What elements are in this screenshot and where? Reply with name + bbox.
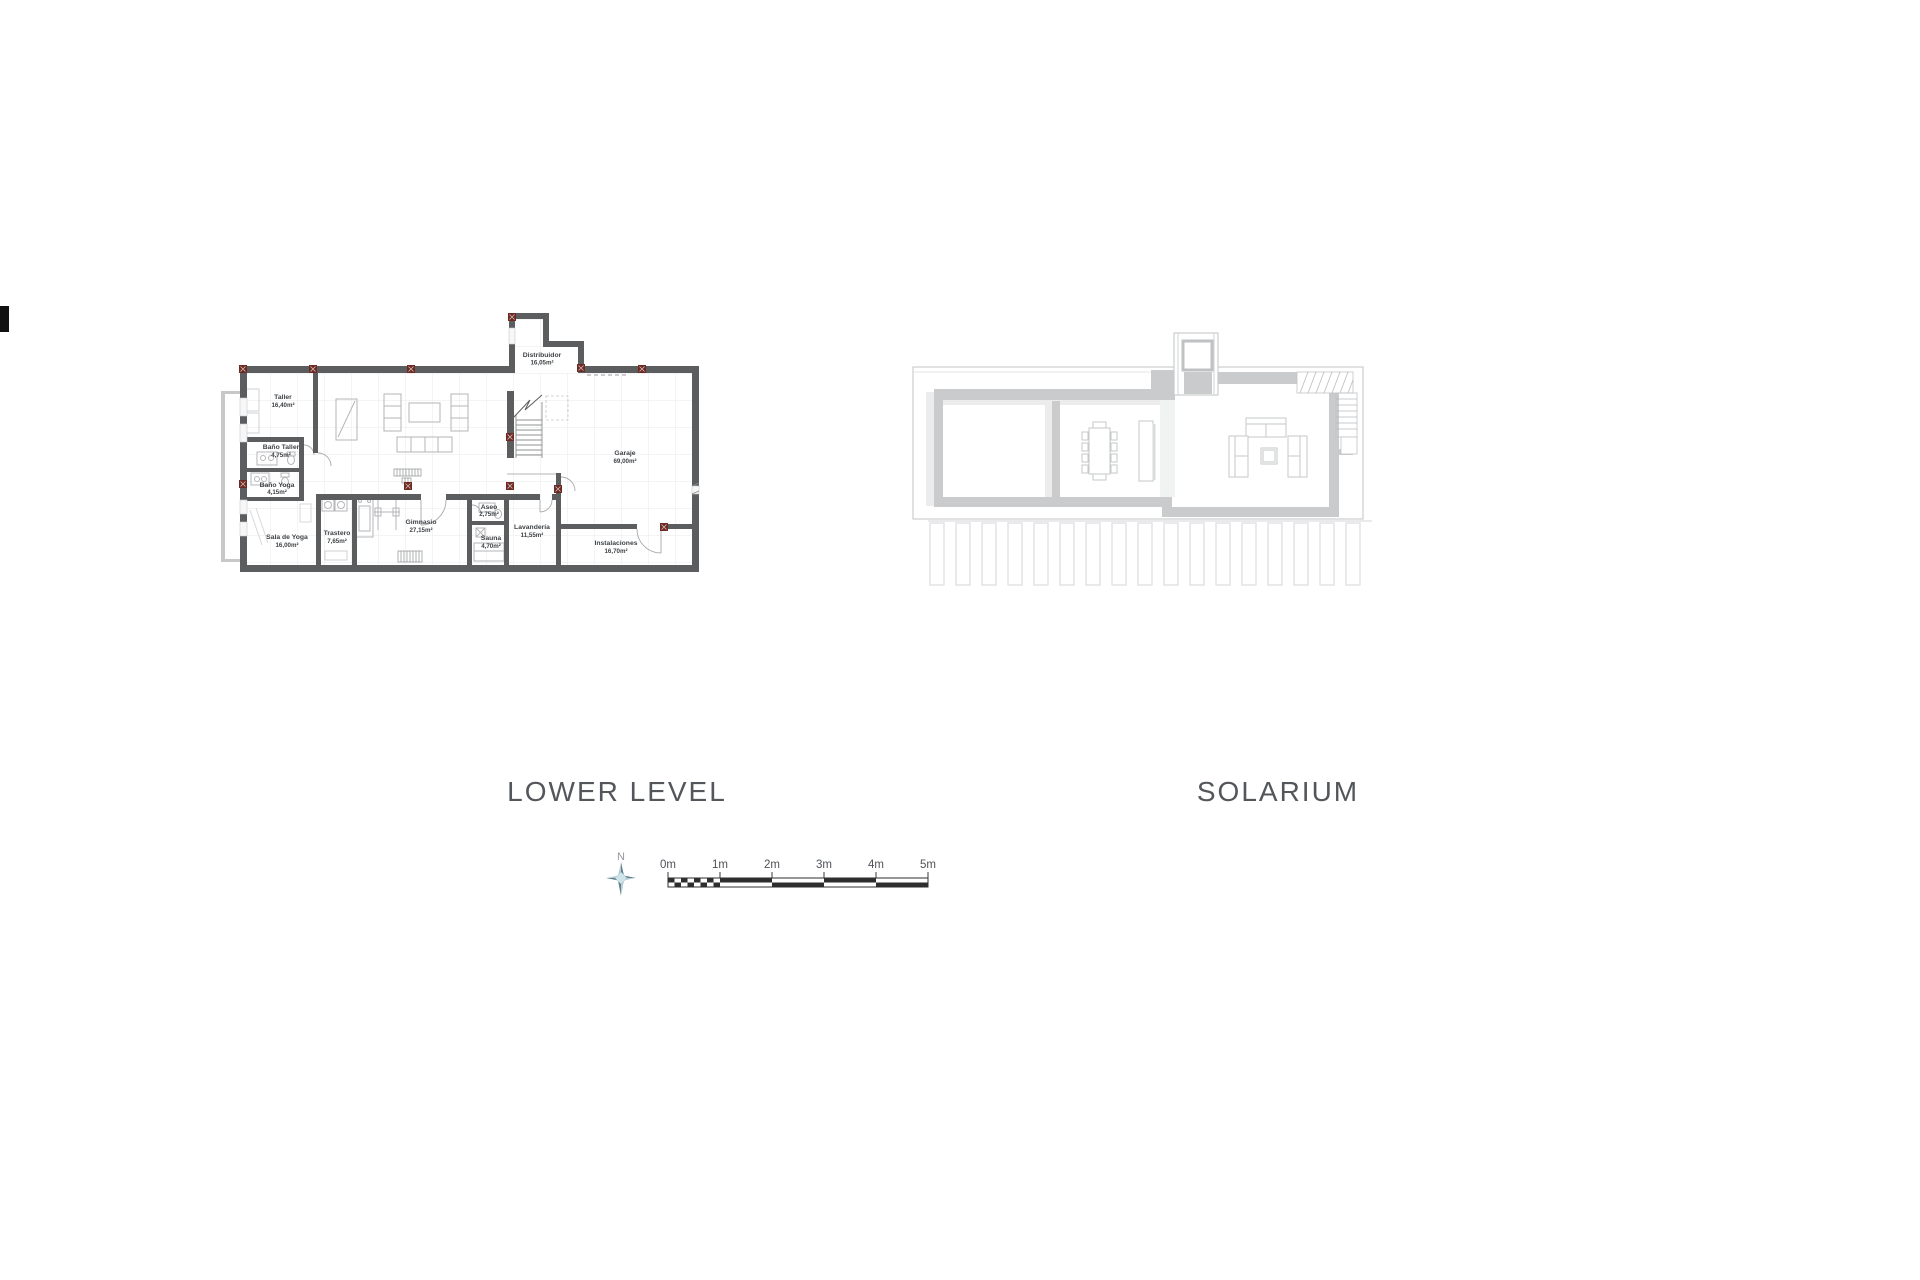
scale-label-0m: 0m <box>660 859 676 871</box>
room-area-gimnasio: 27,15m² <box>409 527 432 534</box>
north-label: N <box>617 851 625 863</box>
room-label-garaje: Garaje <box>614 450 635 457</box>
room-area-aseo: 2,75m² <box>479 511 499 518</box>
scale-bar: 0m 1m 2m 3m 4m 5m <box>660 859 936 887</box>
room-label-sauna: Sauna <box>481 535 502 542</box>
room-label-instalaciones: Instalaciones <box>594 540 637 547</box>
room-label-sala-yoga: Sala de Yoga <box>266 534 308 541</box>
room-area-sala-yoga: 16,00m² <box>275 542 298 549</box>
room-area-taller: 16,40m² <box>271 402 294 409</box>
scale-label-3m: 3m <box>816 859 832 871</box>
solarium-plan <box>913 333 1372 585</box>
room-area-garaje: 69,00m² <box>613 458 636 465</box>
room-area-instalaciones: 16,70m² <box>604 548 627 555</box>
room-label-distribuidor: Distribuidor <box>523 352 562 359</box>
room-label-lavanderia: Lavandería <box>514 524 550 531</box>
room-area-lavanderia: 11,55m² <box>521 532 544 539</box>
scale-label-1m: 1m <box>712 859 728 871</box>
room-label-bano-yoga: Baño Yoga <box>260 482 295 489</box>
room-area-distribuidor: 16,05m² <box>530 360 553 367</box>
scale-label-4m: 4m <box>868 859 884 871</box>
room-label-gimnasio: Gimnasio <box>406 519 437 526</box>
room-area-bano-yoga: 4,15m² <box>267 489 287 496</box>
room-area-trastero: 7,65m² <box>327 538 347 545</box>
lower-level-plan: Taller 16,40m² Baño Taller 4,75m² Baño Y… <box>221 313 699 572</box>
scale-label-5m: 5m <box>920 859 936 871</box>
room-label-trastero: Trastero <box>324 530 351 537</box>
room-label-taller: Taller <box>274 394 292 401</box>
north-compass: N <box>606 851 636 896</box>
solarium-title: SOLARIUM <box>1128 776 1428 808</box>
room-label-bano-taller: Baño Taller <box>263 444 300 451</box>
solarium-pergola-slats <box>928 521 1372 585</box>
room-label-aseo: Aseo <box>481 504 498 511</box>
plans-canvas: Taller 16,40m² Baño Taller 4,75m² Baño Y… <box>0 0 1920 1280</box>
room-area-bano-taller: 4,75m² <box>271 452 291 459</box>
compass-star-icon <box>606 862 636 896</box>
room-area-sauna: 4,70m² <box>481 543 501 550</box>
lower-level-title: LOWER LEVEL <box>467 776 767 808</box>
scale-label-2m: 2m <box>764 859 780 871</box>
solarium-tower <box>1174 333 1218 395</box>
